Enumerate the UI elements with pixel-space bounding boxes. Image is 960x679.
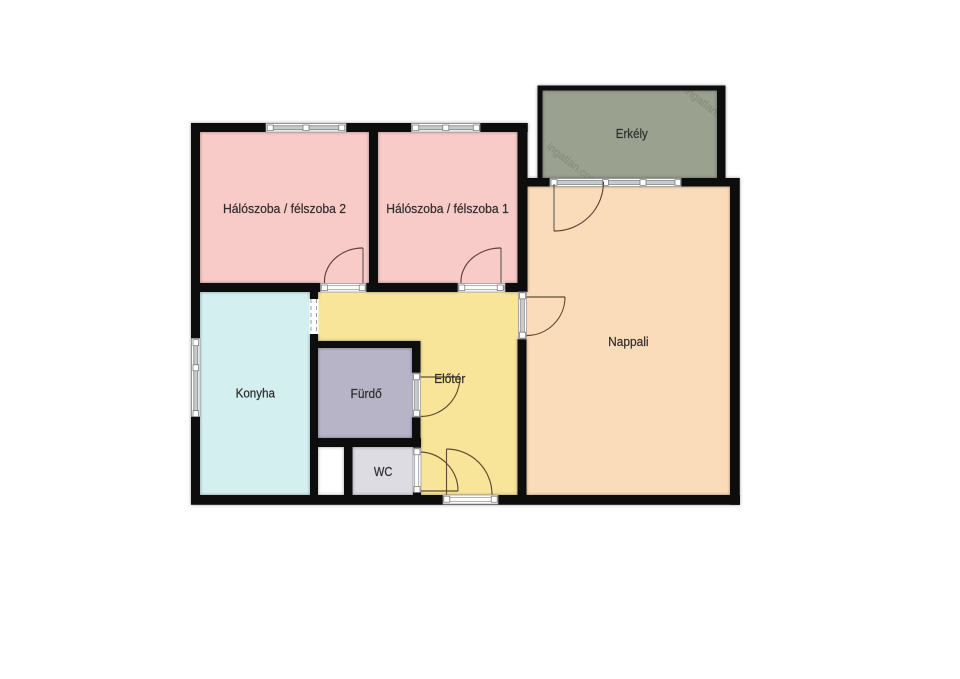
svg-text:Nappali: Nappali bbox=[608, 334, 649, 349]
svg-text:Hálószoba / félszoba 2: Hálószoba / félszoba 2 bbox=[223, 201, 346, 216]
svg-text:Erkély: Erkély bbox=[616, 126, 648, 141]
svg-text:Előtér: Előtér bbox=[434, 371, 466, 386]
svg-text:Konyha: Konyha bbox=[236, 386, 276, 401]
svg-text:Fürdő: Fürdő bbox=[351, 386, 382, 401]
svg-text:Hálószoba / félszoba 1: Hálószoba / félszoba 1 bbox=[386, 201, 508, 216]
svg-text:WC: WC bbox=[374, 464, 393, 479]
